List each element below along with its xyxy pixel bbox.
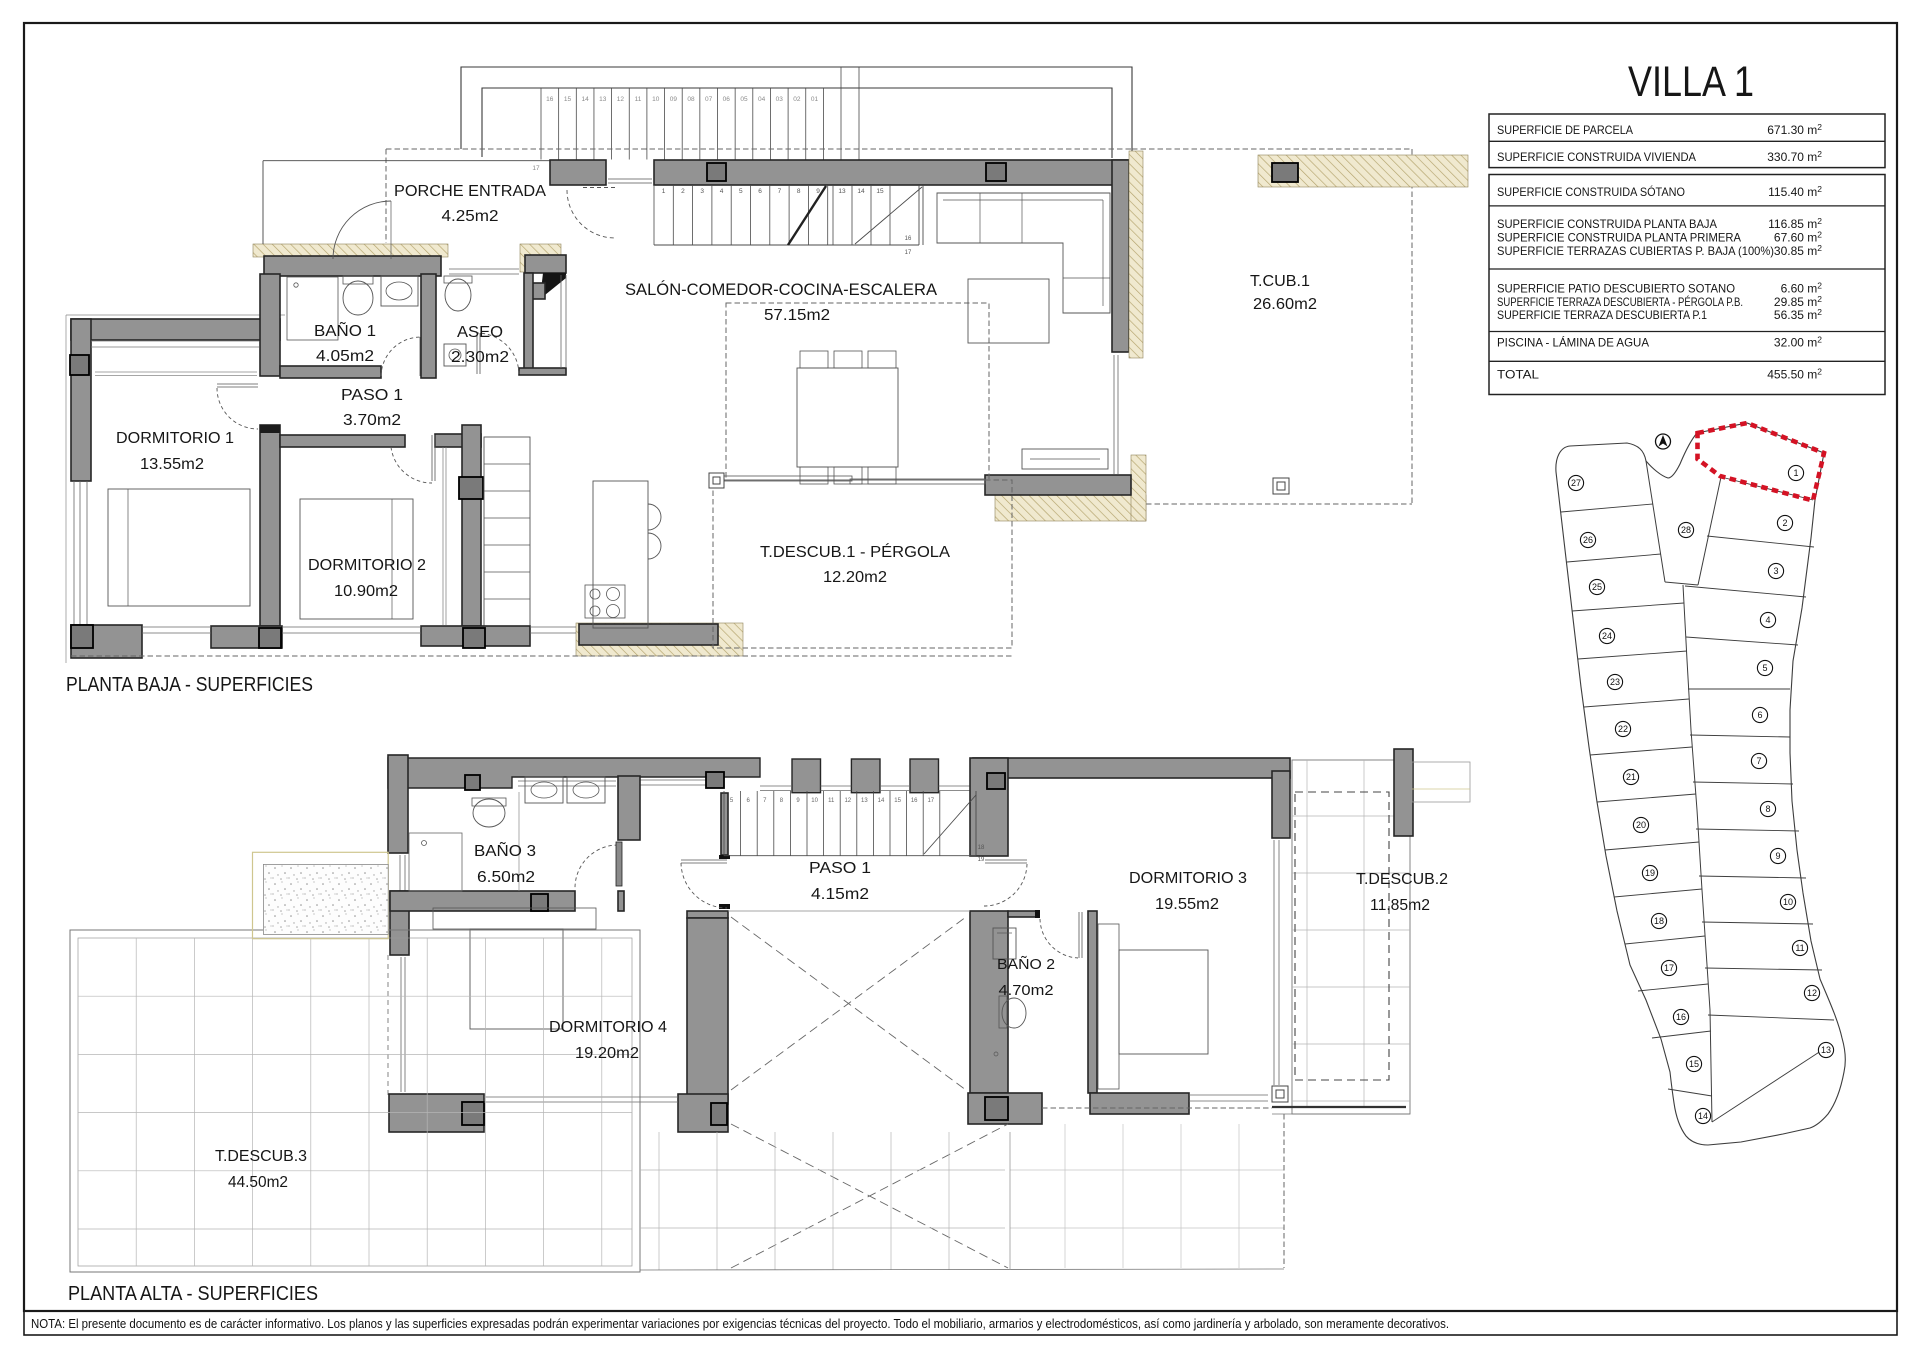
svg-text:26.60m2: 26.60m2 <box>1253 296 1317 313</box>
svg-text:17: 17 <box>1664 963 1674 973</box>
svg-text:SUPERFICIE CONSTRUIDA SÓTANO: SUPERFICIE CONSTRUIDA SÓTANO <box>1497 184 1685 199</box>
svg-text:7: 7 <box>1756 756 1761 766</box>
svg-text:11.85m2: 11.85m2 <box>1370 897 1430 914</box>
svg-text:SUPERFICIE TERRAZAS CUBIERTAS: SUPERFICIE TERRAZAS CUBIERTAS P. BAJA (1… <box>1497 244 1774 258</box>
svg-text:671.30 m2: 671.30 m2 <box>1767 122 1822 137</box>
svg-text:SUPERFICIE PATIO DESCUBIERTO S: SUPERFICIE PATIO DESCUBIERTO SOTANO <box>1497 282 1735 296</box>
svg-text:PORCHE ENTRADA: PORCHE ENTRADA <box>394 183 546 200</box>
svg-text:T.DESCUB.2: T.DESCUB.2 <box>1356 871 1448 888</box>
svg-text:NOTA: El presente documento e: NOTA: El presente documento es de caráct… <box>31 1317 1449 1331</box>
svg-text:10.90m2: 10.90m2 <box>334 583 398 600</box>
svg-text:22: 22 <box>1618 724 1628 734</box>
svg-text:18: 18 <box>1654 916 1664 926</box>
svg-text:4.05m2: 4.05m2 <box>316 348 374 365</box>
svg-text:9: 9 <box>816 188 820 195</box>
svg-text:14: 14 <box>857 188 865 195</box>
svg-text:05: 05 <box>740 96 748 103</box>
svg-text:7: 7 <box>778 188 782 195</box>
svg-text:01: 01 <box>811 96 819 103</box>
svg-text:T.CUB.1: T.CUB.1 <box>1250 273 1310 290</box>
svg-text:15: 15 <box>1689 1059 1699 1069</box>
svg-text:1: 1 <box>1793 468 1798 478</box>
svg-text:6.60 m2: 6.60 m2 <box>1781 281 1823 296</box>
svg-text:4: 4 <box>720 188 724 195</box>
svg-text:17: 17 <box>927 798 934 804</box>
svg-text:DORMITORIO 2: DORMITORIO 2 <box>308 557 426 574</box>
svg-text:BAÑO 2: BAÑO 2 <box>997 956 1055 973</box>
svg-text:12: 12 <box>844 798 851 804</box>
svg-text:11: 11 <box>635 96 642 103</box>
svg-text:25: 25 <box>1592 582 1602 592</box>
svg-text:15: 15 <box>564 96 572 103</box>
svg-text:DORMITORIO 4: DORMITORIO 4 <box>549 1019 667 1036</box>
svg-text:26: 26 <box>1583 535 1593 545</box>
svg-text:PLANTA BAJA - SUPERFICIES: PLANTA BAJA - SUPERFICIES <box>66 674 313 696</box>
svg-text:32.00 m2: 32.00 m2 <box>1774 335 1822 350</box>
svg-text:14: 14 <box>1698 1111 1708 1121</box>
svg-text:19.20m2: 19.20m2 <box>575 1045 639 1062</box>
svg-text:21: 21 <box>1626 772 1636 782</box>
svg-text:4.70m2: 4.70m2 <box>999 982 1054 999</box>
svg-text:SUPERFICIE TERRAZA DESCUBIERTA: SUPERFICIE TERRAZA DESCUBIERTA - PÉRGOLA… <box>1497 294 1743 309</box>
svg-text:16: 16 <box>905 236 912 242</box>
svg-text:14: 14 <box>878 798 885 804</box>
svg-text:13: 13 <box>861 798 868 804</box>
svg-text:07: 07 <box>705 96 713 103</box>
svg-text:3: 3 <box>1773 566 1778 576</box>
svg-text:T.DESCUB.1 - PÉRGOLA: T.DESCUB.1 - PÉRGOLA <box>760 542 950 561</box>
svg-text:56.35 m2: 56.35 m2 <box>1774 307 1822 322</box>
svg-text:23: 23 <box>1610 677 1620 687</box>
svg-text:17: 17 <box>905 250 912 256</box>
svg-text:10: 10 <box>652 96 660 103</box>
svg-text:08: 08 <box>687 96 695 103</box>
svg-text:12: 12 <box>1807 988 1817 998</box>
svg-text:16: 16 <box>911 798 918 804</box>
svg-text:57.15m2: 57.15m2 <box>764 307 830 324</box>
svg-text:24: 24 <box>1602 631 1612 641</box>
svg-text:VILLA 1: VILLA 1 <box>1628 58 1754 106</box>
svg-text:4.15m2: 4.15m2 <box>811 886 869 903</box>
svg-text:3: 3 <box>700 188 704 195</box>
svg-text:15: 15 <box>876 188 884 195</box>
svg-text:8: 8 <box>1765 804 1770 814</box>
svg-text:6: 6 <box>1757 710 1762 720</box>
svg-text:6.50m2: 6.50m2 <box>477 869 535 886</box>
svg-text:13.55m2: 13.55m2 <box>140 456 204 473</box>
svg-text:8: 8 <box>797 188 801 195</box>
svg-text:4.25m2: 4.25m2 <box>442 208 499 225</box>
svg-text:PASO 1: PASO 1 <box>809 860 871 877</box>
svg-text:14: 14 <box>581 96 589 103</box>
svg-text:PASO 1: PASO 1 <box>341 387 403 404</box>
svg-text:11: 11 <box>1795 943 1804 953</box>
svg-text:04: 04 <box>758 96 766 103</box>
svg-text:15: 15 <box>894 798 901 804</box>
svg-text:3.70m2: 3.70m2 <box>343 412 401 429</box>
svg-text:28: 28 <box>1681 525 1691 535</box>
svg-text:PLANTA ALTA - SUPERFICIES: PLANTA ALTA - SUPERFICIES <box>68 1283 318 1305</box>
svg-text:29.85 m2: 29.85 m2 <box>1774 294 1822 309</box>
svg-text:12.20m2: 12.20m2 <box>823 569 887 586</box>
svg-text:SUPERFICIE DE PARCELA: SUPERFICIE DE PARCELA <box>1497 123 1633 137</box>
svg-text:116.85 m2: 116.85 m2 <box>1768 216 1822 231</box>
svg-text:67.60 m2: 67.60 m2 <box>1774 230 1822 245</box>
svg-text:6: 6 <box>758 188 762 195</box>
svg-text:16: 16 <box>546 96 554 103</box>
svg-text:13: 13 <box>599 96 607 103</box>
svg-text:115.40 m2: 115.40 m2 <box>1768 184 1822 199</box>
svg-text:SUPERFICIE CONSTRUIDA PLANTA P: SUPERFICIE CONSTRUIDA PLANTA PRIMERA <box>1497 231 1741 245</box>
svg-text:13: 13 <box>838 188 846 195</box>
svg-text:18: 18 <box>978 845 985 851</box>
svg-text:2.30m2: 2.30m2 <box>451 349 509 366</box>
svg-text:02: 02 <box>793 96 801 103</box>
svg-text:DORMITORIO 1: DORMITORIO 1 <box>116 430 234 447</box>
svg-text:5: 5 <box>739 188 743 195</box>
svg-text:T.DESCUB.3: T.DESCUB.3 <box>215 1148 307 1165</box>
svg-text:2: 2 <box>681 188 685 195</box>
svg-text:13: 13 <box>1821 1045 1831 1055</box>
svg-text:DORMITORIO 3: DORMITORIO 3 <box>1129 870 1247 887</box>
svg-text:19: 19 <box>978 857 985 863</box>
svg-text:4: 4 <box>1765 615 1770 625</box>
svg-text:SUPERFICIE TERRAZA DESCUBIERTA: SUPERFICIE TERRAZA DESCUBIERTA P.1 <box>1497 308 1707 322</box>
svg-text:SALÓN-COMEDOR-COCINA-ESCALERA: SALÓN-COMEDOR-COCINA-ESCALERA <box>625 280 938 299</box>
svg-text:TOTAL: TOTAL <box>1497 368 1539 382</box>
svg-text:5: 5 <box>1762 663 1767 673</box>
svg-text:10: 10 <box>1783 897 1793 907</box>
svg-text:9: 9 <box>1775 851 1780 861</box>
svg-text:44.50m2: 44.50m2 <box>228 1174 288 1191</box>
svg-text:SUPERFICIE CONSTRUIDA PLANTA B: SUPERFICIE CONSTRUIDA PLANTA BAJA <box>1497 217 1717 231</box>
svg-text:455.50 m2: 455.50 m2 <box>1767 367 1822 382</box>
svg-text:06: 06 <box>723 96 731 103</box>
svg-text:16: 16 <box>1676 1012 1686 1022</box>
svg-text:30.85 m2: 30.85 m2 <box>1774 243 1822 258</box>
svg-text:17: 17 <box>532 165 540 172</box>
svg-text:2: 2 <box>1782 518 1787 528</box>
svg-text:03: 03 <box>776 96 784 103</box>
svg-text:19.55m2: 19.55m2 <box>1155 896 1219 913</box>
svg-text:11: 11 <box>828 798 835 804</box>
svg-text:SUPERFICIE CONSTRUIDA VIVIENDA: SUPERFICIE CONSTRUIDA VIVIENDA <box>1497 150 1696 164</box>
svg-text:27: 27 <box>1571 478 1581 488</box>
svg-text:ASEO: ASEO <box>457 324 503 341</box>
svg-text:BAÑO 3: BAÑO 3 <box>474 840 536 860</box>
svg-text:09: 09 <box>670 96 678 103</box>
svg-text:1: 1 <box>662 188 666 195</box>
svg-text:330.70 m2: 330.70 m2 <box>1767 149 1822 164</box>
svg-text:BAÑO 1: BAÑO 1 <box>314 320 376 340</box>
svg-text:19: 19 <box>1645 868 1655 878</box>
svg-text:20: 20 <box>1636 820 1646 830</box>
svg-text:PISCINA - LÁMINA DE AGUA: PISCINA - LÁMINA DE AGUA <box>1497 335 1649 350</box>
svg-text:10: 10 <box>811 798 818 804</box>
svg-text:12: 12 <box>617 96 625 103</box>
